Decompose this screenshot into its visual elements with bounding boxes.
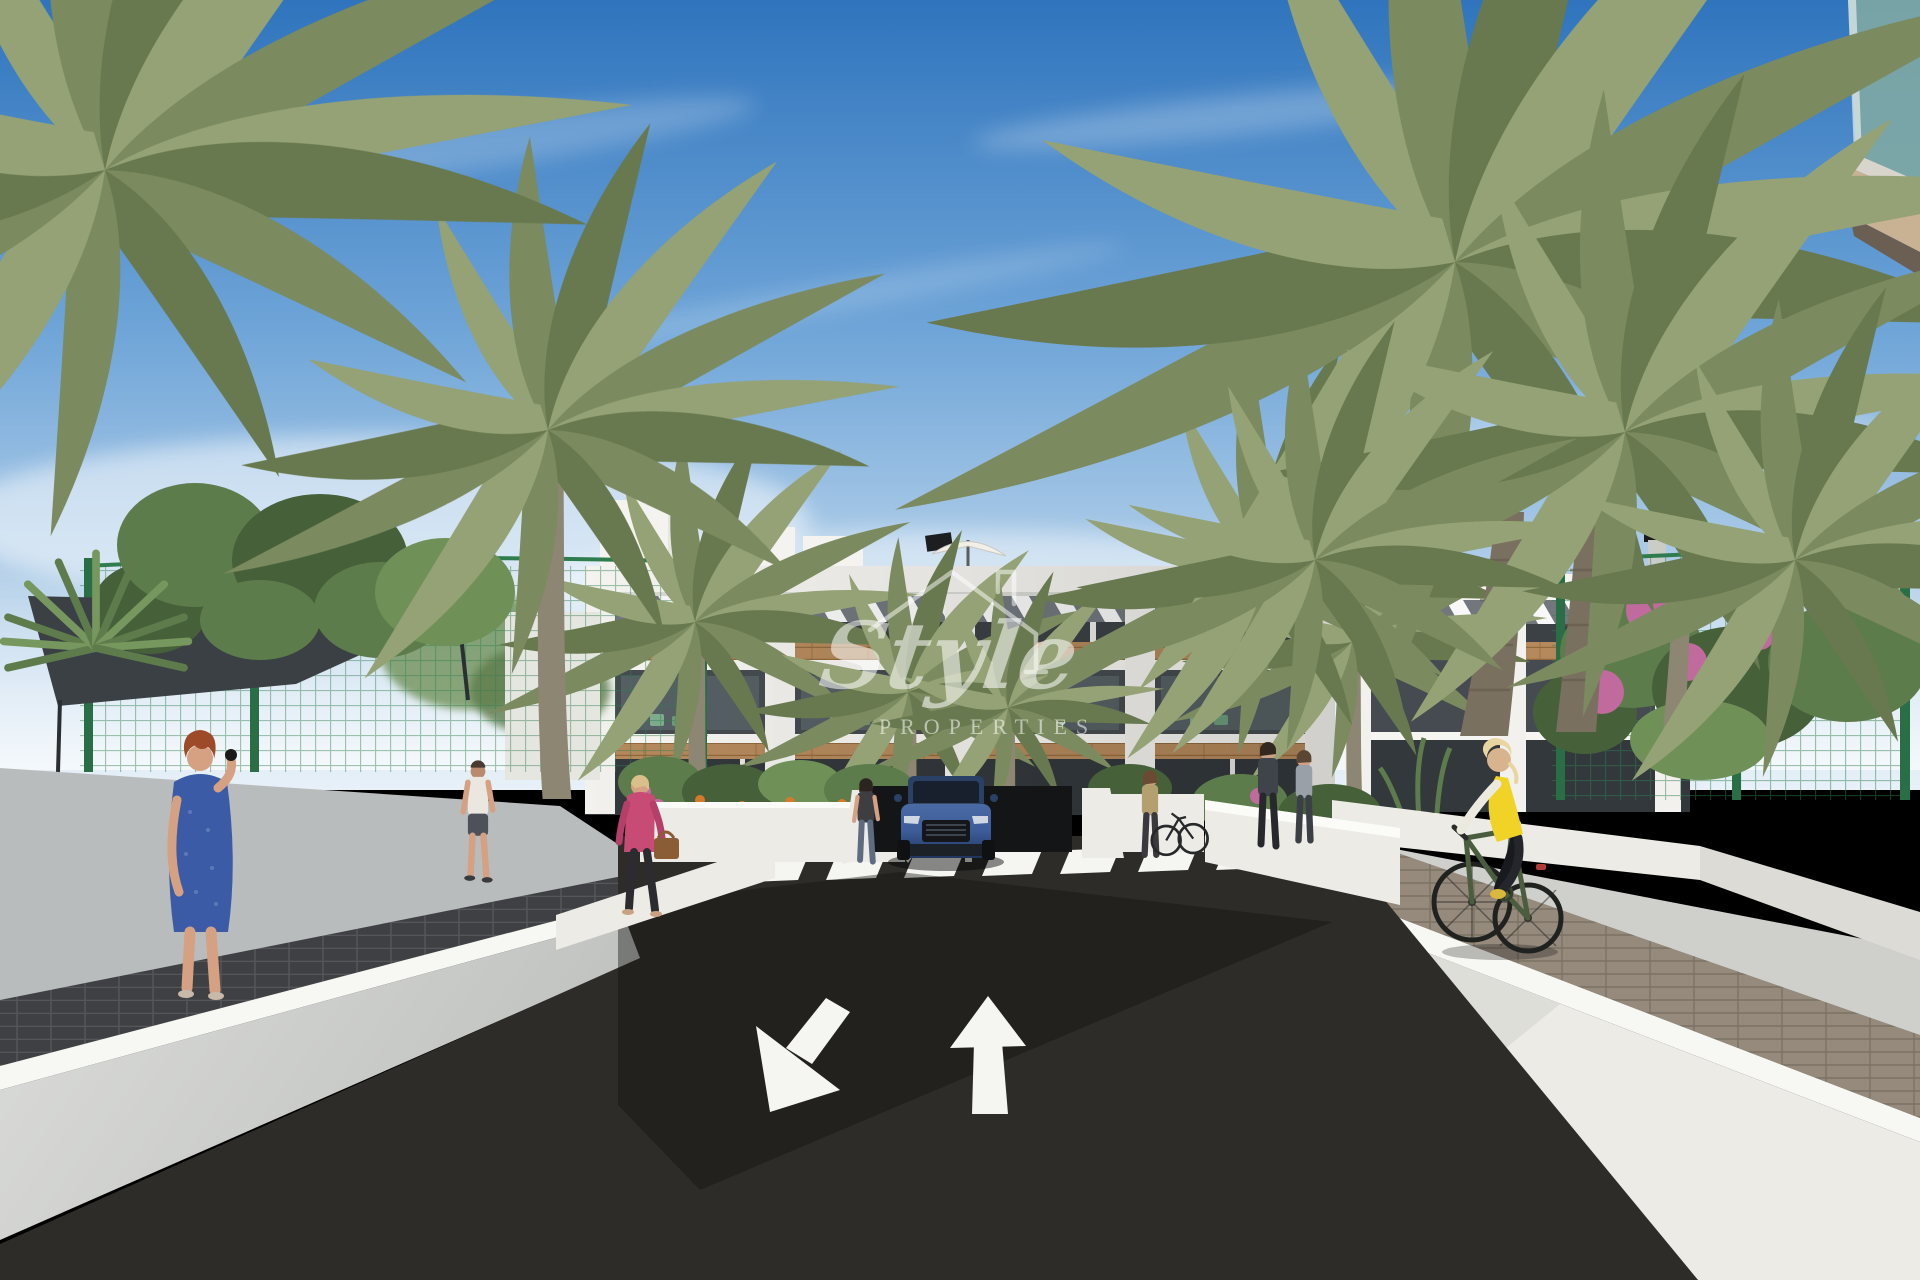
- watermark-brand: Style: [814, 601, 1085, 709]
- watermark-subtitle: PROPERTIES: [879, 714, 1097, 739]
- phone: [225, 749, 237, 761]
- architectural-render: Style PROPERTIES: [0, 0, 1920, 1280]
